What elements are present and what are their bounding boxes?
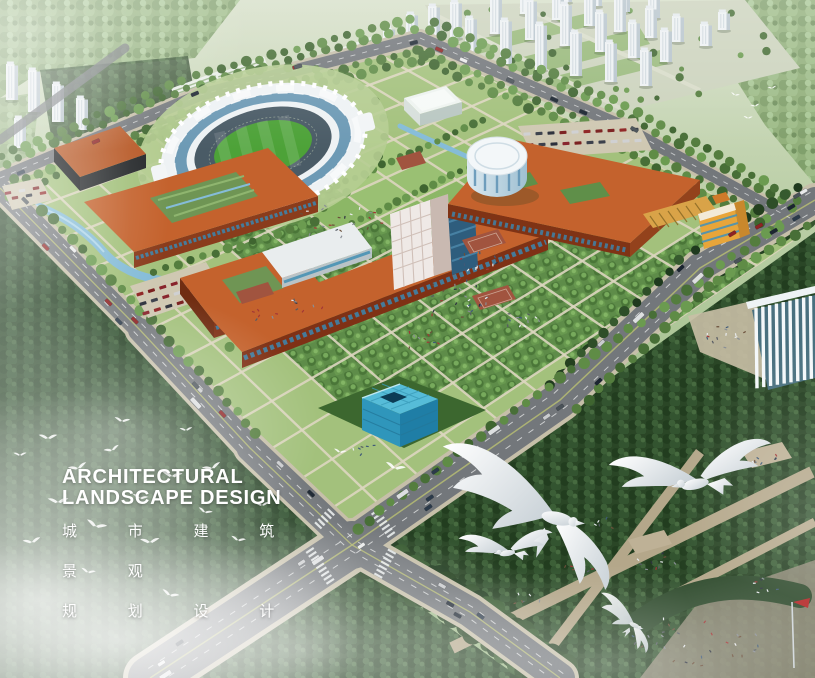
subtitle-cn-2: 景 观 (62, 563, 297, 579)
subtitle-cn-1: 城 市 建 筑 (62, 523, 297, 539)
title-line-2: LANDSCAPE DESIGN (62, 488, 297, 509)
title-line-1: ARCHITECTURAL (62, 467, 297, 488)
subtitle-cn-3: 规 划 设 计 (62, 603, 297, 619)
title-block: ARCHITECTURAL LANDSCAPE DESIGN 城 市 建 筑 景… (62, 467, 297, 619)
architectural-rendering-poster: ARCHITECTURAL LANDSCAPE DESIGN 城 市 建 筑 景… (0, 0, 815, 678)
